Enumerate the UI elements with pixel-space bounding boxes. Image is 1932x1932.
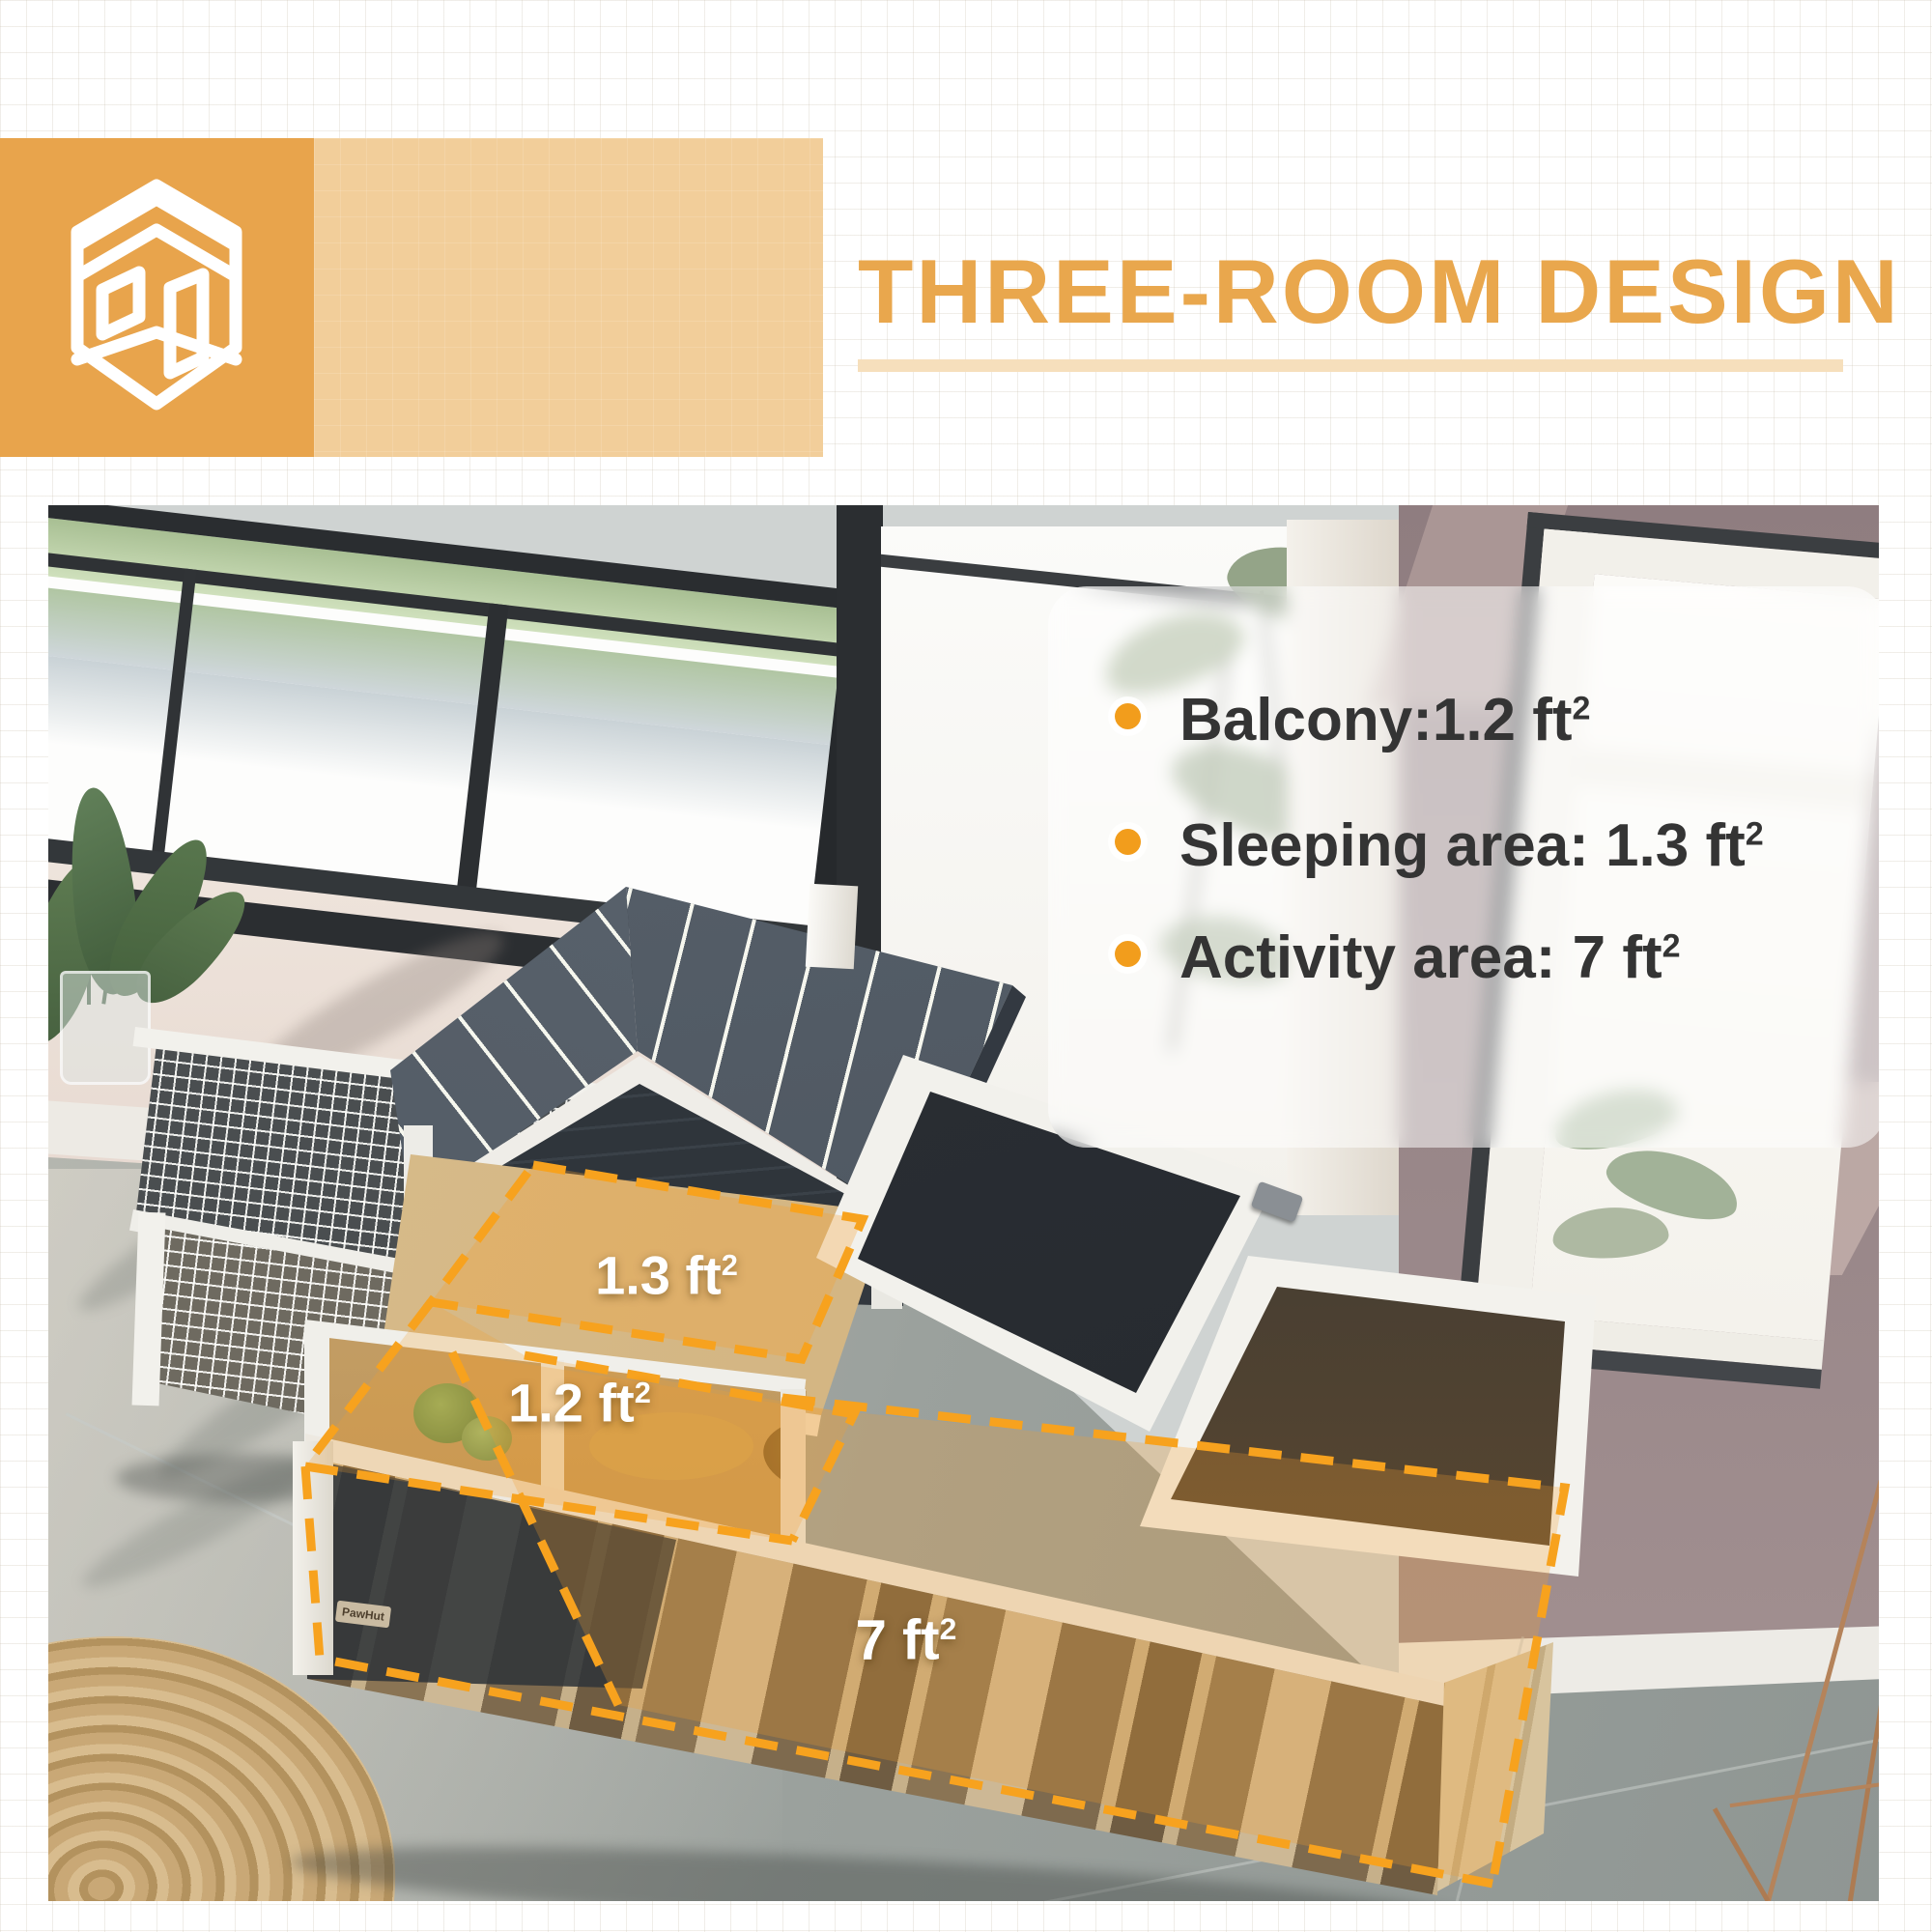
bullet-text: Balcony:1.2 ft2: [1179, 686, 1591, 754]
label-activity-area: 7 ft2: [856, 1608, 957, 1673]
bullet-text: Activity area: 7 ft2: [1179, 923, 1681, 992]
wire-table: [1671, 1449, 1879, 1901]
label-sleeping-area: 1.3 ft2: [595, 1244, 738, 1307]
product-photo: PawHut: [48, 505, 1879, 1901]
balcony-post: [781, 1389, 806, 1548]
base-corner-post: [293, 1441, 333, 1675]
house-chimney: [806, 884, 858, 969]
title-underline: [858, 359, 1843, 372]
label-balcony-area: 1.2 ft2: [508, 1372, 651, 1435]
bullet-dot: [1115, 941, 1141, 967]
bullet-dot: [1115, 703, 1141, 729]
bullet-row-sleeping: Sleeping area: 1.3 ft2: [1115, 811, 1764, 880]
lettuce: [462, 1416, 512, 1461]
bullet-dot: [1115, 829, 1141, 855]
page: THREE-ROOM DESIGN: [0, 0, 1932, 1932]
page-title: THREE-ROOM DESIGN: [858, 240, 1901, 344]
bullet-text: Sleeping area: 1.3 ft2: [1179, 811, 1764, 880]
room-cube-icon: [70, 176, 243, 412]
bullet-row-activity: Activity area: 7 ft2: [1115, 923, 1681, 992]
bullet-row-balcony: Balcony:1.2 ft2: [1115, 686, 1591, 754]
header-accent-block-light: [314, 138, 823, 457]
